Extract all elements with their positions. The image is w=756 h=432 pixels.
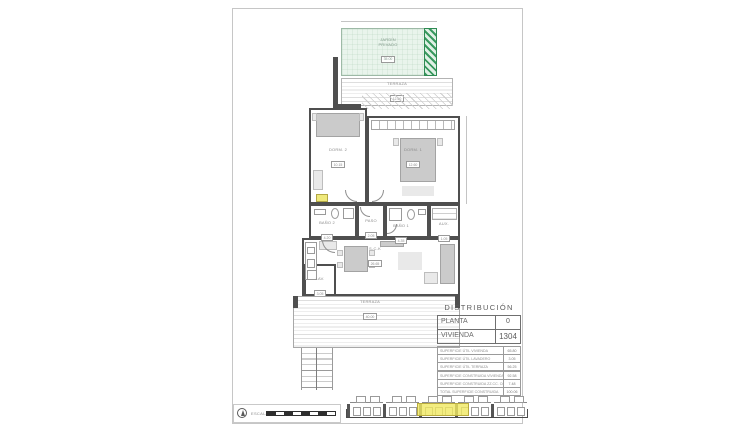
elevation-upper-floor [428,396,438,403]
title-block-table: PLANTA 0 VIVIENDA 1304 [437,315,521,344]
elevation-upper-floor [392,396,402,403]
scale-segment [318,412,327,415]
terrace-bottom-label: TERRAZA 40.00 [344,300,396,323]
elevation-upper-floor [370,396,380,403]
elevation-unit [494,402,527,417]
planta-label: PLANTA [438,316,495,329]
living-label: S-C-K 26.65 [358,247,392,270]
scale-segment [293,412,302,415]
garden-area-box: 35.00 [381,56,396,63]
boundary-wall [333,57,338,109]
elevation-baseline [346,417,528,419]
title-block-heading: DISTRIBUCIÓN [437,303,521,312]
table-row: SUPERFICIE CONSTRUIDA ZZ.CC. COMUNES 7.4… [438,380,520,388]
chair [337,262,343,268]
aux-label: AUX. 1.05 [433,222,455,245]
rug [398,252,422,270]
elevation-window [363,407,371,416]
bedroom1-label: DORM. 1 12.60 [393,148,433,171]
scale-segment [310,412,319,415]
elevation-pier [491,404,494,417]
elevation-window [471,407,479,416]
kitchen-sink [307,247,315,254]
nightstand [312,113,317,121]
table-row: SUPERFICIE CONSTRUIDA VIVIENDA 92.58 [438,372,520,380]
stairs-direction-line [316,348,317,390]
elevation-unit [386,402,419,417]
elevation-window [353,407,361,416]
elevation-window [409,407,417,416]
ottoman [424,272,438,284]
elevation-upper-floor [356,396,366,403]
elevation-window [517,407,525,416]
chair [337,250,343,256]
elevation-window [373,407,381,416]
sink [314,209,326,215]
bed-double [316,113,360,137]
elevation-end-tick [527,409,528,418]
garden-label: JARDÍN PRIVADO 35.00 [358,38,418,66]
table-row: SUPERFICIE ÚTIL VIVIENDA 65.80 [438,347,520,355]
scale-segment [267,412,276,415]
table-row-planta: PLANTA 0 [438,316,520,330]
table-row-vivienda: VIVIENDA 1304 [438,330,520,343]
vivienda-value: 1304 [495,330,520,343]
elevation-pier [383,404,386,417]
elevation-window [389,407,397,416]
elevation-window [399,407,407,416]
exterior-stairs [301,348,333,390]
nightstand [437,138,443,146]
highlighted-unit-1304 [417,403,469,416]
elevation-upper-floor [478,396,488,403]
bedroom2-label: DORM. 2 10.15 [321,148,355,171]
graphic-scale-bar [266,411,336,416]
vivienda-label: VIVIENDA [438,330,495,343]
dimension-line [466,116,467,204]
cooktop [307,259,315,268]
elevation-upper-floor [500,396,510,403]
north-needle-icon [241,410,245,416]
elevation-window [507,407,515,416]
useful-areas-table: SUPERFICIE ÚTIL VIVIENDA 65.80 SUPERFICI… [437,346,521,371]
table-row: SUPERFICIE ÚTIL TERRAZA 56.25 [438,363,520,370]
nightstand [359,113,364,121]
elevation-upper-floor [406,396,416,403]
dimension-line [341,21,437,22]
plan-highlight-marker [316,194,328,202]
bathroom2-label: BAÑO 2 4.20 [312,221,342,244]
shower-tray [343,208,354,219]
shower-tray [389,208,402,221]
elevation-unit [350,402,383,417]
table-row: SUPERFICIE ÚTIL LAVADERO 3.05 [438,355,520,363]
toilet [331,208,339,219]
nightstand [393,138,399,146]
wardrobe [371,120,455,130]
garden-hedge-hatch [424,28,437,76]
elevation-upper-floor [464,396,474,403]
scale-segment [284,412,293,415]
elevation-pier [347,404,350,417]
elevation-upper-floor [514,396,524,403]
rug [402,186,434,196]
dresser [313,170,323,190]
scale-segment [276,412,285,415]
sink [418,209,426,215]
paso-label: PASO 2.05 [359,219,383,242]
scale-segment [327,412,336,415]
floor-plan-sheet: JARDÍN PRIVADO 35.00 TERRAZA 12.60 [0,0,756,432]
sofa [440,244,455,284]
pergola-hatch [362,93,453,109]
bathroom1-label: BAÑO 1 4.35 [388,224,414,247]
elevation-upper-floor [442,396,452,403]
terrace-wall-stub [293,296,298,308]
elevation-window [481,407,489,416]
elevation-window [497,407,505,416]
closet-shelves [432,208,457,220]
toilet [407,209,415,220]
planta-value: 0 [495,316,520,329]
scale-segment [301,412,310,415]
